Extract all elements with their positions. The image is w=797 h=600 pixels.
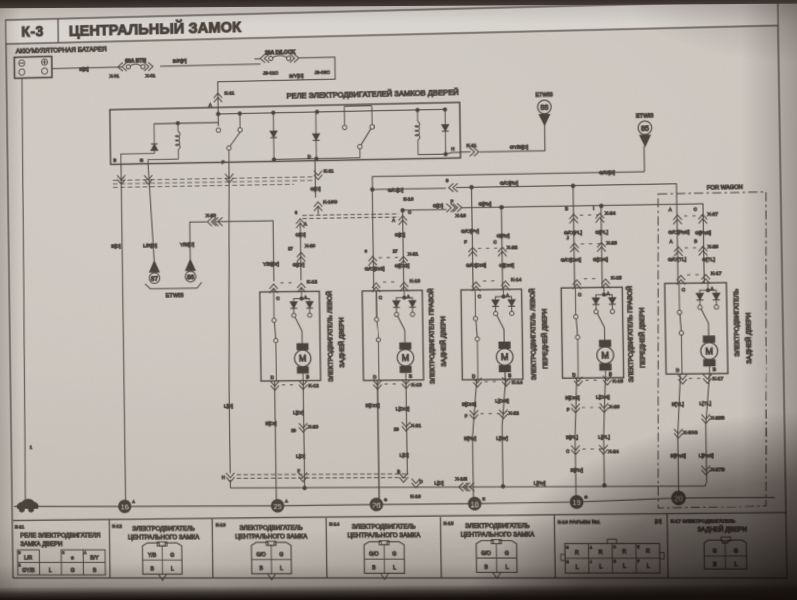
svg-text:F: F — [465, 413, 468, 418]
svg-text:G[Dr4]: G[Dr4] — [593, 257, 609, 263]
svg-text:J: J — [590, 560, 592, 564]
svg-text:X-29: X-29 — [708, 244, 719, 250]
svg-text:L[FL]: L[FL] — [598, 435, 610, 441]
svg-text:L: L — [647, 563, 650, 569]
svg-text:ЦЕНТРАЛЬНОГО ЗАМКА: ЦЕНТРАЛЬНОГО ЗАМКА — [347, 532, 421, 539]
svg-text:К-11: К-11 — [15, 524, 25, 530]
svg-text:X-21: X-21 — [408, 251, 419, 257]
svg-text:K-13: K-13 — [411, 382, 422, 388]
svg-text:H: H — [451, 146, 454, 151]
svg-text:B[E]: B[E] — [79, 66, 89, 72]
svg-text:АККУМУЛЯТОРНАЯ БАТАРЕЯ: АККУМУЛЯТОРНАЯ БАТАРЕЯ — [16, 46, 107, 55]
svg-text:L/R: L/R — [24, 555, 32, 561]
svg-text:ETWIS: ETWIS — [636, 113, 654, 120]
svg-text:GY/B: GY/B — [22, 568, 35, 574]
svg-text:D: D — [308, 154, 312, 159]
svg-text:P: P — [451, 199, 454, 204]
svg-text:L/R[D]: L/R[D] — [143, 243, 158, 249]
svg-text:FOR WAGON: FOR WAGON — [707, 185, 743, 192]
svg-text:B: B — [484, 564, 488, 570]
svg-text:*: * — [71, 555, 74, 564]
svg-text:K-12: K-12 — [308, 383, 319, 389]
svg-text:I: I — [593, 205, 594, 210]
svg-text:X-16: X-16 — [455, 213, 466, 219]
svg-text:G[Dr2]: G[Dr2] — [395, 263, 410, 269]
svg-text:G: G — [170, 553, 174, 559]
svg-text:C: C — [613, 545, 616, 549]
svg-text:K-14: K-14 — [512, 379, 523, 385]
svg-text:L[TL]: L[TL] — [699, 401, 711, 407]
svg-text:Y/B[Dr]: Y/B[Dr] — [263, 261, 280, 267]
svg-text:ЦЕНТРАЛЬНОГО ЗАМКА: ЦЕНТРАЛЬНОГО ЗАМКА — [128, 534, 200, 541]
svg-text:ETWIS: ETWIS — [535, 92, 553, 99]
svg-text:K-15: K-15 — [611, 275, 622, 281]
svg-text:88: 88 — [540, 105, 548, 112]
svg-text:B[Rv2]: B[Rv2] — [670, 453, 686, 459]
svg-text:B[Dr]: B[Dr] — [265, 421, 277, 427]
svg-text:G[TL]: G[TL] — [702, 257, 716, 263]
svg-text:B[Dr4]: B[Dr4] — [565, 395, 580, 401]
svg-text:X-16I: X-16I — [455, 476, 467, 482]
svg-text:X-24: X-24 — [608, 449, 619, 455]
svg-text:ЭЛЕКТРОДВИГАТЕЛЬ: ЭЛЕКТРОДВИГАТЕЛЬ — [352, 524, 416, 531]
svg-text:G[Rv]: G[Rv] — [497, 233, 511, 239]
svg-text:X-24: X-24 — [605, 210, 616, 216]
svg-text:G: G — [384, 498, 387, 502]
svg-text:G/O[Rv2]: G/O[Rv2] — [668, 229, 690, 236]
svg-text:K-17: K-17 — [712, 376, 723, 382]
svg-text:ПЕРЕДНЕЙ ДВЕРИ: ПЕРЕДНЕЙ ДВЕРИ — [539, 309, 549, 369]
svg-text:27: 27 — [288, 246, 294, 251]
svg-text:G: G — [505, 551, 509, 557]
svg-text:F: F — [222, 160, 225, 165]
svg-text:L[Dr2]: L[Dr2] — [396, 406, 410, 412]
svg-text:B[FL]: B[FL] — [566, 435, 579, 441]
svg-text:ПЕРЕДНЕЙ ДВЕРИ: ПЕРЕДНЕЙ ДВЕРИ — [637, 308, 647, 368]
svg-text:G: G — [392, 552, 396, 558]
svg-text:G[D]: G[D] — [395, 232, 406, 238]
svg-text:29: 29 — [291, 428, 297, 433]
svg-text:R: R — [646, 549, 650, 555]
svg-text:ЭЛЕКТРОДВИГАТЕЛЬ ЛЕВОЙ: ЭЛЕКТРОДВИГАТЕЛЬ ЛЕВОЙ — [324, 291, 334, 382]
svg-text:ЭЛЕКТРОДВИГАТЕЛЬ: ЭЛЕКТРОДВИГАТЕЛЬ — [733, 289, 741, 357]
svg-text:A: A — [285, 499, 288, 503]
svg-text:РЕЛЕ ЭЛЕКТРОДВИГАТЕЛЕЙ ЗАМКОВ: РЕЛЕ ЭЛЕКТРОДВИГАТЕЛЕЙ ЗАМКОВ ДВЕРЕЙ — [286, 87, 458, 100]
svg-text:L: L — [393, 565, 396, 571]
svg-text:G[Dr]: G[Dr] — [293, 262, 306, 268]
svg-text:G/O[Pv]: G/O[Pv] — [461, 228, 480, 235]
svg-text:ЗАДНЕЙ ДВЕРИ: ЗАДНЕЙ ДВЕРИ — [743, 313, 753, 364]
svg-text:X-23: X-23 — [606, 240, 617, 246]
svg-text:A: A — [590, 545, 593, 549]
svg-text:G/O[Dr2]: G/O[Dr2] — [365, 266, 386, 272]
svg-text:J: J — [567, 235, 569, 240]
svg-text:A: A — [304, 221, 307, 226]
svg-text:J8-01C: J8-01C — [263, 70, 279, 75]
svg-text:F: F — [567, 407, 570, 412]
svg-text:E: E — [637, 545, 639, 549]
svg-text:ЭЛЕКТРОДВИГАТЕЛЬ: ЭЛЕКТРОДВИГАТЕЛЬ — [239, 524, 302, 531]
svg-text:1: 1 — [30, 445, 33, 450]
svg-text:L[D]: L[D] — [399, 453, 409, 459]
svg-text:G[FL]: G[FL] — [595, 230, 608, 236]
svg-text:ЗАДНЕЙ ДВЕРИ: ЗАДНЕЙ ДВЕРИ — [336, 317, 346, 367]
svg-text:K-15: K-15 — [612, 378, 623, 384]
svg-text:К-17 ЭЛЕКТРОДВИГАТЕЛЬ: К-17 ЭЛЕКТРОДВИГАТЕЛЬ — [670, 519, 735, 525]
svg-text:X-30G: X-30G — [683, 430, 698, 436]
svg-text:К-16: К-16 — [403, 196, 414, 202]
svg-text:L[Dr]: L[Dr] — [293, 410, 304, 416]
svg-text:L[Dr4]: L[Dr4] — [596, 394, 611, 400]
svg-text:20: 20 — [674, 494, 683, 503]
svg-text:18: 18 — [470, 499, 478, 508]
svg-text:19: 19 — [572, 498, 581, 507]
svg-text:16: 16 — [121, 502, 129, 511]
svg-text:G[Rv]: G[Rv] — [478, 201, 492, 207]
svg-text:B[Dr2]: B[Dr2] — [365, 403, 380, 409]
svg-text:G[D]: G[D] — [433, 203, 444, 209]
svg-text:ЦЕНТРАЛЬНОГО ЗАМКА: ЦЕНТРАЛЬНОГО ЗАМКА — [461, 531, 536, 538]
svg-text:B: B — [694, 238, 697, 243]
svg-text:ЦЕНТРАЛЬНОГО ЗАМКА: ЦЕНТРАЛЬНОГО ЗАМКА — [235, 533, 308, 540]
svg-text:B[Rv]: B[Rv] — [464, 436, 477, 442]
svg-text:B[Rv]: B[Rv] — [570, 467, 583, 473]
svg-text:ЭЛЕКТРОДВИГАТЕЛЬ: ЭЛЕКТРОДВИГАТЕЛЬ — [465, 523, 530, 530]
svg-text:G/O[Dr3]: G/O[Dr3] — [466, 263, 487, 270]
svg-text:F: F — [464, 239, 467, 244]
svg-text:B[D]: B[D] — [111, 243, 121, 249]
svg-text:F: F — [297, 468, 300, 473]
svg-text:L[D]: L[D] — [224, 404, 234, 410]
svg-text:H: H — [566, 560, 568, 564]
svg-text:G: G — [734, 549, 738, 555]
svg-text:B: B — [113, 158, 116, 163]
svg-text:ЗАДНЕЙ ДВЕРИ: ЗАДНЕЙ ДВЕРИ — [438, 316, 448, 367]
svg-text:X-29B: X-29B — [710, 415, 724, 421]
svg-text:L: L — [49, 568, 52, 574]
svg-text:K-12: K-12 — [307, 279, 318, 285]
svg-text:H: H — [222, 475, 225, 480]
svg-text:G[Rv2]: G[Rv2] — [695, 230, 712, 237]
svg-text:B/Y: B/Y — [90, 555, 99, 561]
svg-text:ЗАДНЕЙ ДВЕРИ: ЗАДНЕЙ ДВЕРИ — [697, 525, 747, 534]
svg-text:C: C — [493, 239, 496, 244]
svg-text:X-23: X-23 — [609, 404, 620, 410]
svg-text:A: A — [669, 207, 672, 212]
svg-text:ЭЛЕКТРОДВИГАТЕЛЬ ЛЕВОЙ: ЭЛЕКТРОДВИГАТЕЛЬ ЛЕВОЙ — [527, 288, 538, 380]
svg-text:F: F — [637, 559, 639, 563]
svg-text:86: 86 — [187, 274, 195, 281]
svg-text:R: R — [622, 549, 626, 555]
svg-text:L[D]: L[D] — [296, 454, 306, 460]
svg-text:L: L — [623, 564, 626, 570]
svg-text:R: R — [599, 550, 603, 556]
svg-text:G[D]: G[D] — [310, 186, 321, 192]
svg-text:K-11: K-11 — [324, 168, 334, 174]
svg-text:B/R[F]: B/R[F] — [173, 58, 188, 64]
svg-text:L[Rv2]: L[Rv2] — [699, 453, 715, 459]
svg-text:K-16: K-16 — [410, 494, 421, 500]
svg-text:РЕЛЕ ЭЛЕКТРОДВИГАТЕЛЯ: РЕЛЕ ЭЛЕКТРОДВИГАТЕЛЯ — [20, 532, 100, 539]
svg-text:6: 6 — [365, 248, 368, 253]
svg-text:GY/B[D]: GY/B[D] — [510, 145, 529, 152]
svg-text:C: C — [566, 449, 569, 454]
svg-text:6: 6 — [295, 210, 298, 215]
svg-text:C: C — [62, 551, 65, 555]
svg-text:B/Y[D]: B/Y[D] — [289, 73, 304, 80]
svg-text:L: L — [505, 564, 508, 570]
svg-text:G[D]: G[D] — [295, 232, 306, 238]
svg-text:ЗАМКА ДВЕРИ: ЗАМКА ДВЕРИ — [20, 541, 62, 548]
svg-text:B: B — [397, 469, 400, 474]
svg-text:G/O: G/O — [369, 552, 379, 558]
svg-text:L: L — [599, 564, 602, 570]
svg-text:X-22: X-22 — [508, 410, 519, 416]
svg-text:L: L — [280, 566, 283, 572]
svg-text:85: 85 — [641, 125, 649, 132]
svg-text:B: B — [259, 566, 263, 572]
svg-text:K-11: K-11 — [466, 143, 477, 149]
svg-text:B: B — [19, 563, 21, 567]
svg-text:L[Dr3]: L[Dr3] — [495, 398, 509, 404]
svg-text:G[Dr3]: G[Dr3] — [499, 262, 515, 268]
svg-text:G/O: G/O — [481, 551, 491, 557]
svg-text:ЭЛЕКТРОДВИГАТЕЛЬ: ЭЛЕКТРОДВИГАТЕЛЬ — [132, 525, 195, 532]
svg-text:Y/B: Y/B — [148, 553, 157, 559]
svg-text:26: 26 — [372, 500, 380, 509]
svg-text:G: G — [584, 495, 587, 499]
svg-text:K-13: K-13 — [410, 278, 421, 284]
svg-text:B: B — [372, 565, 376, 571]
svg-text:X-01: X-01 — [145, 73, 155, 78]
svg-text:K-17: K-17 — [711, 271, 722, 277]
svg-text:R: R — [575, 550, 579, 556]
svg-text:ETWIS: ETWIS — [166, 293, 184, 299]
svg-text:G/O[D]: G/O[D] — [599, 170, 616, 177]
svg-text:X-27B: X-27B — [710, 467, 724, 473]
svg-text:B: B — [565, 206, 568, 211]
svg-text:G/O[Dr4]: G/O[Dr4] — [561, 257, 582, 264]
svg-text:X-20: X-20 — [305, 243, 316, 249]
svg-text:29: 29 — [394, 427, 400, 432]
svg-text:G: G — [713, 549, 717, 555]
svg-text:27: 27 — [393, 248, 399, 253]
svg-text:G: G — [71, 568, 75, 574]
svg-text:L[Rv]: L[Rv] — [496, 436, 509, 442]
svg-text:G: G — [566, 546, 569, 550]
svg-text:G: G — [140, 158, 144, 163]
svg-text:К-14: К-14 — [329, 521, 339, 527]
svg-text:D: D — [18, 551, 21, 555]
svg-text:B[Dr3]: B[Dr3] — [462, 401, 477, 407]
svg-text:A: A — [209, 102, 212, 107]
svg-text:G/O[D]: G/O[D] — [388, 187, 404, 193]
svg-text:B[TL]: B[TL] — [672, 401, 685, 407]
svg-text:B: B — [93, 568, 97, 574]
svg-text:C: C — [694, 206, 697, 211]
svg-text:L: L — [735, 562, 738, 568]
svg-text:A: A — [84, 551, 87, 555]
svg-text:К-3: К-3 — [21, 24, 44, 41]
svg-text:L: L — [576, 565, 579, 571]
svg-text:A: A — [669, 239, 672, 244]
svg-text:X-01: X-01 — [109, 74, 119, 79]
svg-text:G/O: G/O — [256, 552, 266, 558]
svg-text:E: E — [482, 497, 485, 501]
svg-text:Y/B[D]: Y/B[D] — [180, 242, 195, 248]
svg-text:L[Rv]: L[Rv] — [534, 480, 547, 486]
svg-text:D: D — [614, 560, 617, 564]
svg-text:G/O[Rv]: G/O[Rv] — [500, 180, 519, 187]
svg-text:L: L — [171, 566, 174, 572]
svg-text:К-12: К-12 — [112, 523, 122, 529]
svg-text:[D]: [D] — [655, 518, 662, 524]
svg-text:К-13: К-13 — [216, 522, 226, 528]
svg-text:G: G — [279, 552, 283, 558]
svg-text:L[D]: L[D] — [434, 480, 444, 486]
svg-text:D: D — [420, 479, 423, 484]
svg-text:K-14: K-14 — [511, 277, 522, 283]
svg-text:A: A — [132, 500, 135, 504]
svg-text:ЭЛЕКТРОДВИГАТЕЛЬ ПРАВОЙ: ЭЛЕКТРОДВИГАТЕЛЬ ПРАВОЙ — [624, 286, 635, 383]
svg-text:J8-08C: J8-08C — [314, 69, 330, 75]
svg-text:X-22: X-22 — [507, 245, 518, 251]
svg-text:B: B — [151, 566, 155, 572]
svg-text:ЭЛЕКТРОДВИГАТЕЛЬ ПРАВОЙ: ЭЛЕКТРОДВИГАТЕЛЬ ПРАВОЙ — [426, 288, 437, 384]
svg-text:К-15: К-15 — [443, 521, 454, 527]
svg-text:G/O[TL]: G/O[TL] — [668, 257, 687, 264]
svg-text:К-16 РАЗЪЕМ №1: К-16 РАЗЪЕМ №1 — [558, 520, 601, 526]
svg-text:K-16G: K-16G — [323, 199, 338, 205]
svg-text:X-20: X-20 — [308, 424, 319, 430]
svg-text:X-27: X-27 — [707, 211, 718, 217]
svg-text:A: A — [392, 218, 395, 223]
svg-text:87: 87 — [151, 276, 159, 283]
svg-text:B: B — [713, 562, 717, 568]
svg-text:K-11: K-11 — [224, 90, 234, 96]
svg-text:25: 25 — [273, 502, 281, 511]
svg-text:X-21: X-21 — [411, 423, 422, 429]
svg-text:9: 9 — [446, 178, 449, 184]
